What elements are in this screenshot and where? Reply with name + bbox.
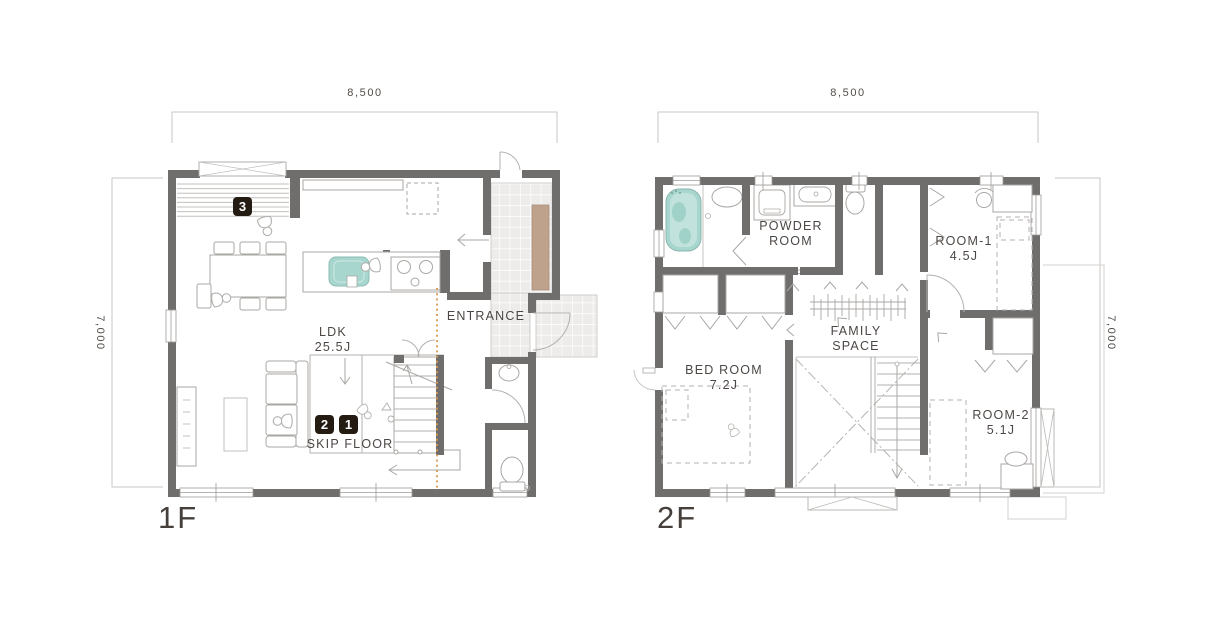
room-size-room2: 5.1J bbox=[972, 423, 1029, 438]
floor2-title: 2F bbox=[657, 500, 697, 536]
room-size-ldk: 25.5J bbox=[315, 340, 352, 355]
dim-1f-depth: 7,000 bbox=[94, 315, 106, 351]
room2-desk bbox=[1001, 452, 1033, 489]
bathtub bbox=[666, 189, 701, 251]
marker-badge-2: 2 bbox=[315, 415, 334, 434]
dim-2f-depth: 7,000 bbox=[1105, 315, 1117, 351]
room-label-room1: ROOM-1 4.5J bbox=[935, 219, 992, 279]
room-name-ldk: LDK bbox=[319, 325, 347, 339]
low-table bbox=[224, 398, 247, 451]
toilet-1f bbox=[500, 457, 530, 491]
dim-bracket-1f-top bbox=[172, 112, 557, 143]
shutter-box bbox=[808, 497, 897, 510]
tv-board bbox=[177, 387, 196, 466]
room-name-room1: ROOM-1 bbox=[935, 234, 992, 248]
room-label-skip-floor: SKIP FLOOR bbox=[307, 437, 394, 452]
room-name-bed-room: BED ROOM bbox=[685, 363, 763, 377]
person-standing bbox=[257, 215, 275, 237]
double-door-arcs bbox=[402, 340, 435, 357]
dim-1f-width: 8,500 bbox=[347, 87, 383, 99]
room-label-entrance: ENTRANCE bbox=[447, 309, 525, 324]
entrance-tile-floor-lower bbox=[491, 293, 530, 357]
marker-badge-1: 1 bbox=[339, 415, 358, 434]
marker-badge-3: 3 bbox=[233, 197, 252, 216]
stove bbox=[391, 257, 440, 290]
room-label-family-space: FAMILY SPACE bbox=[821, 324, 891, 354]
floor2-drawing bbox=[634, 112, 1104, 519]
room1-door-arc bbox=[927, 275, 964, 312]
stair-rail bbox=[389, 450, 460, 475]
dim-bracket-2f-right bbox=[1055, 178, 1100, 487]
room-label-bed-room: BED ROOM 7.2J bbox=[685, 348, 763, 408]
room2-closet bbox=[993, 318, 1033, 354]
washing-machine bbox=[754, 185, 790, 220]
person-baby bbox=[726, 422, 741, 438]
floor1-title: 1F bbox=[158, 500, 198, 536]
family-space-counter bbox=[810, 294, 906, 321]
pantry bbox=[407, 183, 438, 214]
bath-folding-door bbox=[733, 237, 746, 265]
room-size-room1: 4.5J bbox=[935, 249, 992, 264]
back-door-arc bbox=[500, 152, 520, 170]
bath-counter bbox=[712, 187, 742, 207]
balcony bbox=[1041, 409, 1054, 487]
room-size-bed-room: 7.2J bbox=[685, 378, 763, 393]
entrance-slide-arrow bbox=[458, 234, 489, 246]
dining-set bbox=[197, 242, 286, 310]
room1-desk bbox=[975, 185, 1032, 212]
bedroom-door-leaf bbox=[643, 368, 655, 373]
powder-sink bbox=[794, 183, 836, 206]
dim-bracket-1f-left bbox=[112, 178, 163, 487]
washbasin bbox=[499, 365, 519, 381]
void-and-stairs-2f bbox=[796, 357, 920, 487]
dim-bracket-2f-top bbox=[658, 112, 1038, 143]
room-label-ldk: LDK 25.5J bbox=[315, 310, 352, 370]
washroom-door-arc bbox=[492, 390, 525, 423]
room-name-room2: ROOM-2 bbox=[972, 408, 1029, 422]
floor-plan-page: 8,500 7,000 8,500 7,000 LDK 25.5J ENTRAN… bbox=[0, 0, 1220, 630]
toilet-2f bbox=[846, 184, 865, 214]
shoe-cabinet bbox=[532, 205, 549, 290]
sofa bbox=[266, 361, 308, 447]
room-label-room2: ROOM-2 5.1J bbox=[972, 393, 1029, 453]
dim-2f-width: 8,500 bbox=[830, 87, 866, 99]
room-label-powder-room: POWDER ROOM bbox=[749, 219, 833, 249]
